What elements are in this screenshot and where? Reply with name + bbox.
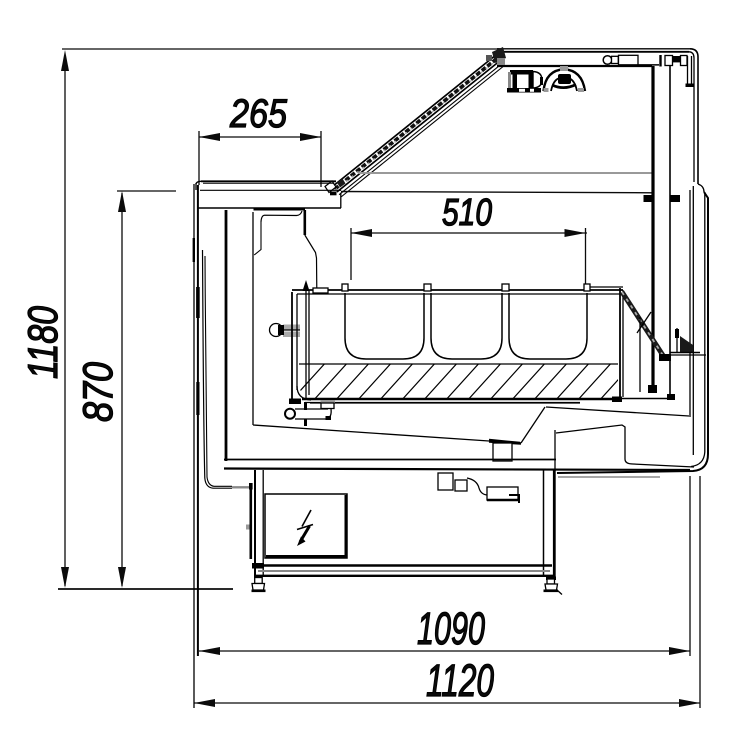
svg-text:265: 265 <box>229 92 287 136</box>
svg-text:510: 510 <box>442 192 492 234</box>
svg-text:1120: 1120 <box>426 655 494 706</box>
svg-text:1090: 1090 <box>417 603 485 654</box>
svg-text:1180: 1180 <box>19 305 66 379</box>
svg-text:870: 870 <box>74 361 121 422</box>
